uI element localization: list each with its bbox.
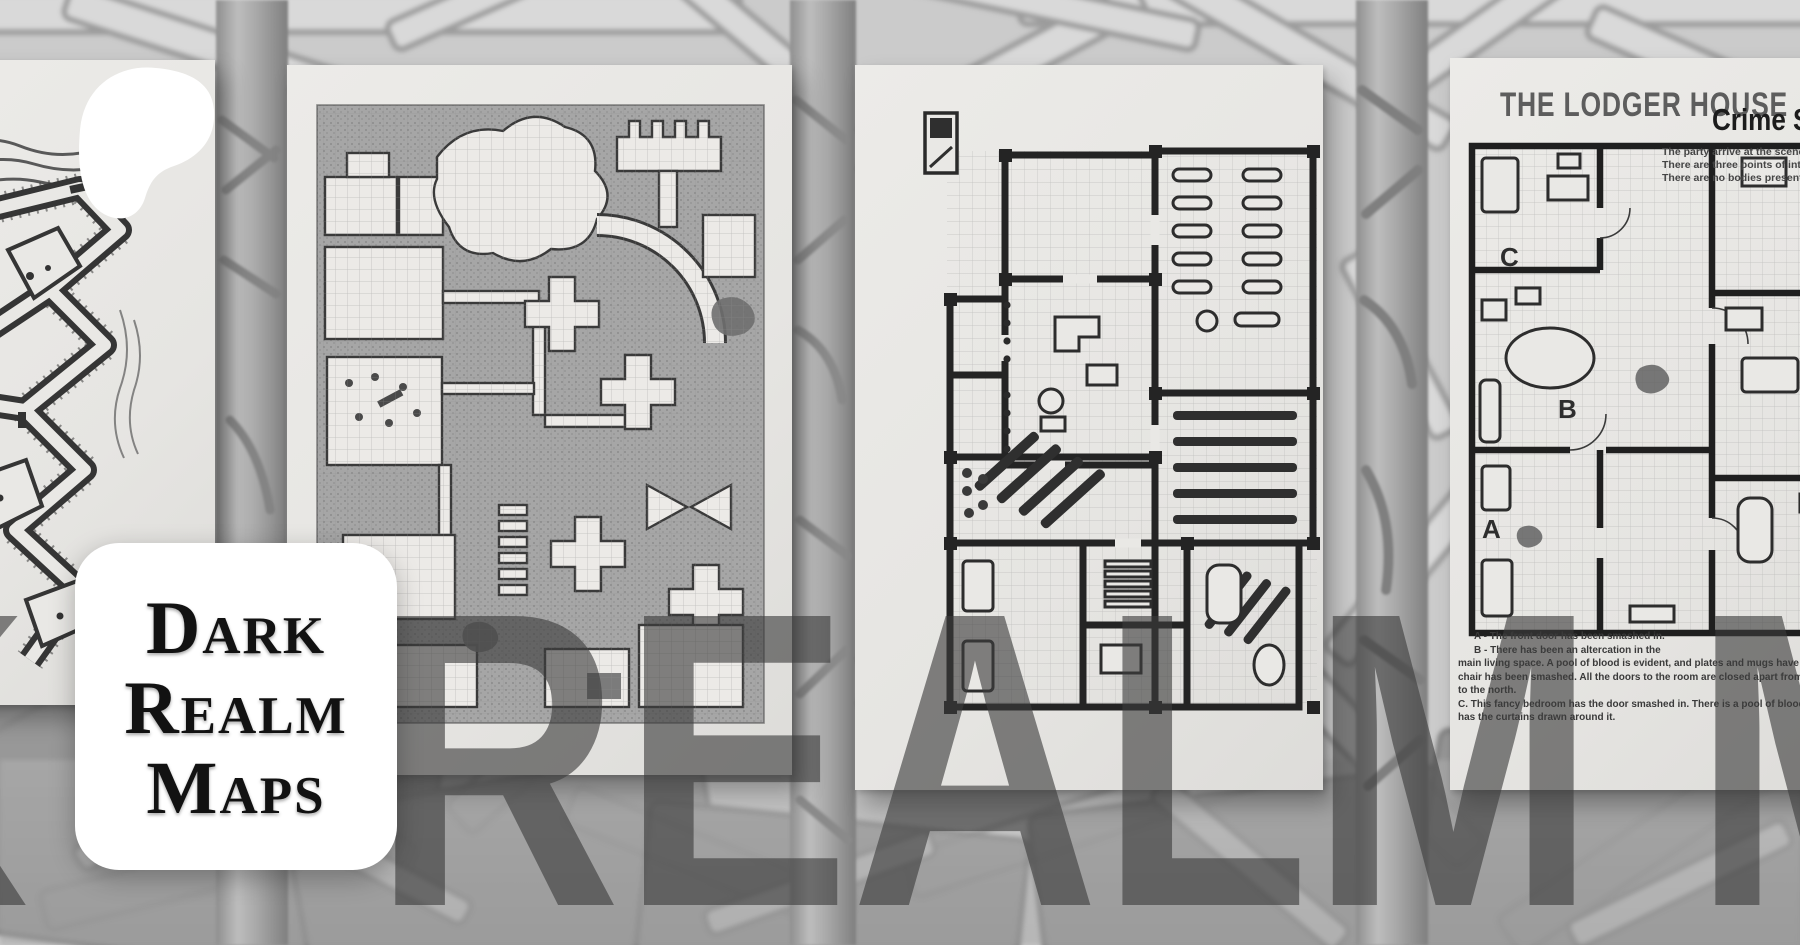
room-label-b: B <box>1558 394 1577 424</box>
hall-floorplan-drawing <box>855 65 1323 790</box>
map-sheet-great-hall <box>855 65 1323 790</box>
logo-line-maps: Maps <box>146 750 325 830</box>
room-label-c: C <box>1500 242 1519 272</box>
note-line: to the north. <box>1458 684 1800 698</box>
intro-line: There are three points of interest. <box>1662 159 1800 172</box>
note-line: C. This fancy bedroom has the door smash… <box>1458 698 1800 712</box>
banner-canvas: C B A THE LODGER HOUSE Crime Scene The p… <box>0 0 1800 945</box>
note-line: A - The front door has been smashed in. <box>1458 630 1800 644</box>
legend-stamp <box>925 113 957 173</box>
patreon-icon <box>68 60 228 230</box>
note-line: B - There has been an altercation in the <box>1458 644 1800 658</box>
dark-realm-maps-logo-card: Dark Realm Maps <box>75 543 397 870</box>
map-sheet-lodger-house: C B A THE LODGER HOUSE Crime Scene The p… <box>1450 58 1800 790</box>
note-line: main living space. A pool of blood is ev… <box>1458 657 1800 671</box>
map-notes-text: A - The front door has been smashed in. … <box>1458 630 1800 725</box>
room-label-a: A <box>1482 514 1501 544</box>
intro-line: The party arrive at the scene. <box>1662 146 1800 158</box>
logo-line-dark: Dark <box>146 590 326 670</box>
note-line: chair has been smashed. All the doors to… <box>1458 671 1800 685</box>
logo-line-realm: Realm <box>124 670 347 750</box>
map-subtitle: Crime Scene <box>1712 102 1800 138</box>
map-intro-text: The party arrive at the scene. There are… <box>1662 146 1800 185</box>
note-line: has the curtains drawn around it. <box>1458 711 1800 725</box>
intro-line: There are no bodies present. <box>1662 172 1800 185</box>
